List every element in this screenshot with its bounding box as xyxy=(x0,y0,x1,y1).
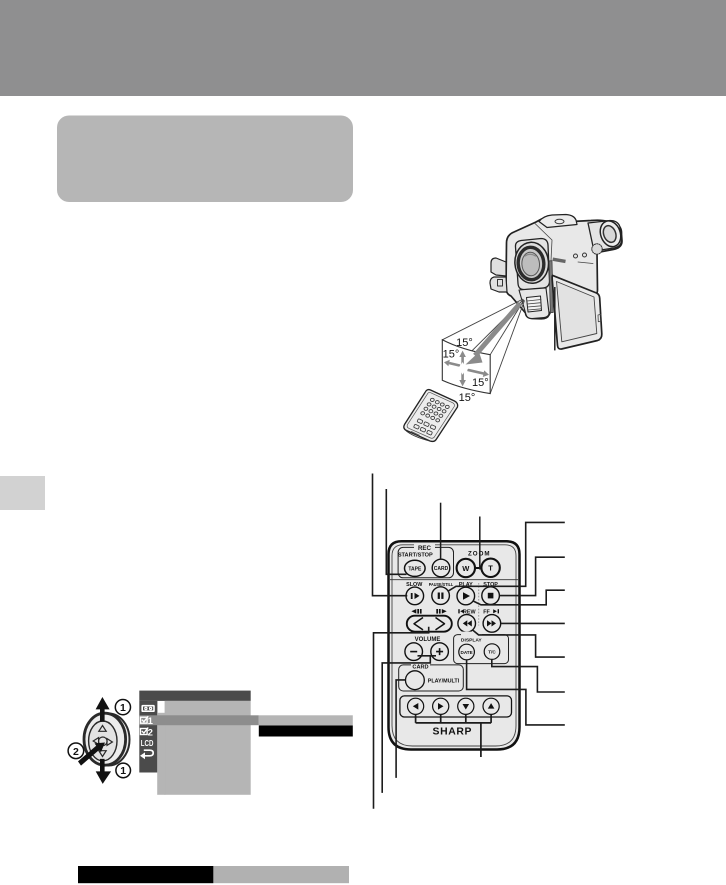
svg-text:W: W xyxy=(462,564,470,573)
svg-text:VOLUME: VOLUME xyxy=(415,637,441,643)
svg-text:2: 2 xyxy=(73,746,79,758)
svg-text:2: 2 xyxy=(148,727,153,738)
svg-text:1: 1 xyxy=(120,702,126,714)
svg-text:DISPLAY: DISPLAY xyxy=(461,638,482,644)
svg-text:TAPE: TAPE xyxy=(408,566,422,572)
svg-text:1: 1 xyxy=(148,716,154,727)
svg-text:CARD: CARD xyxy=(412,665,428,671)
svg-text:1: 1 xyxy=(120,765,126,777)
svg-text:LCD: LCD xyxy=(141,738,154,748)
svg-text:SHARP: SHARP xyxy=(433,727,472,738)
svg-text:T: T xyxy=(488,564,493,573)
svg-text:15°: 15° xyxy=(472,377,489,389)
svg-text:T/C: T/C xyxy=(488,649,496,654)
svg-text:CARD: CARD xyxy=(434,566,449,572)
svg-text:15°: 15° xyxy=(459,392,476,404)
svg-text:15°: 15° xyxy=(443,349,460,361)
svg-text:DATE: DATE xyxy=(461,650,473,655)
svg-text:15°: 15° xyxy=(456,337,473,349)
svg-text:REC: REC xyxy=(418,545,432,552)
svg-text:PLAY/MULTI: PLAY/MULTI xyxy=(428,678,460,684)
svg-text:START/STOP: START/STOP xyxy=(398,553,433,559)
